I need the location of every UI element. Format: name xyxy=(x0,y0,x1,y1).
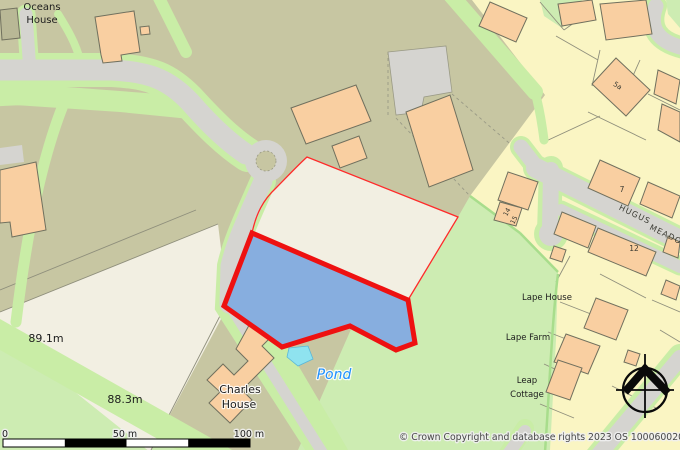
label-pond: Pond xyxy=(317,367,352,383)
label-lape-farm: Lape Farm xyxy=(506,333,550,343)
scale-label-0: 0 xyxy=(2,429,8,440)
label-leap-line2: Cottage xyxy=(510,390,544,400)
roundabout-island xyxy=(256,151,276,171)
label-spot-height-2: 88.3m xyxy=(107,393,142,406)
label-oceans-line2: House xyxy=(26,15,57,26)
scale-label-50m: 50 m xyxy=(113,429,137,440)
house-number-7: 7 xyxy=(620,185,625,194)
label-charles-line1: Charles xyxy=(219,383,261,396)
scale-label-100m: 100 m xyxy=(234,429,264,440)
road xyxy=(550,170,551,230)
attribution-text: © Crown Copyright and database rights 20… xyxy=(399,432,680,443)
house-number-12: 12 xyxy=(629,244,639,253)
hard-standing xyxy=(0,145,24,165)
label-lape-house: Lape House xyxy=(522,293,572,303)
label-oceans-line1: Oceans xyxy=(23,2,60,13)
map-canvas[interactable]: Oceans House 89.1m 88.3m Charles House P… xyxy=(0,0,680,450)
label-spot-height-1: 89.1m xyxy=(28,332,63,345)
label-charles-line2: House xyxy=(222,398,257,411)
building xyxy=(600,0,652,40)
building xyxy=(140,26,150,35)
building xyxy=(0,8,20,40)
label-leap-line1: Leap xyxy=(517,376,537,386)
